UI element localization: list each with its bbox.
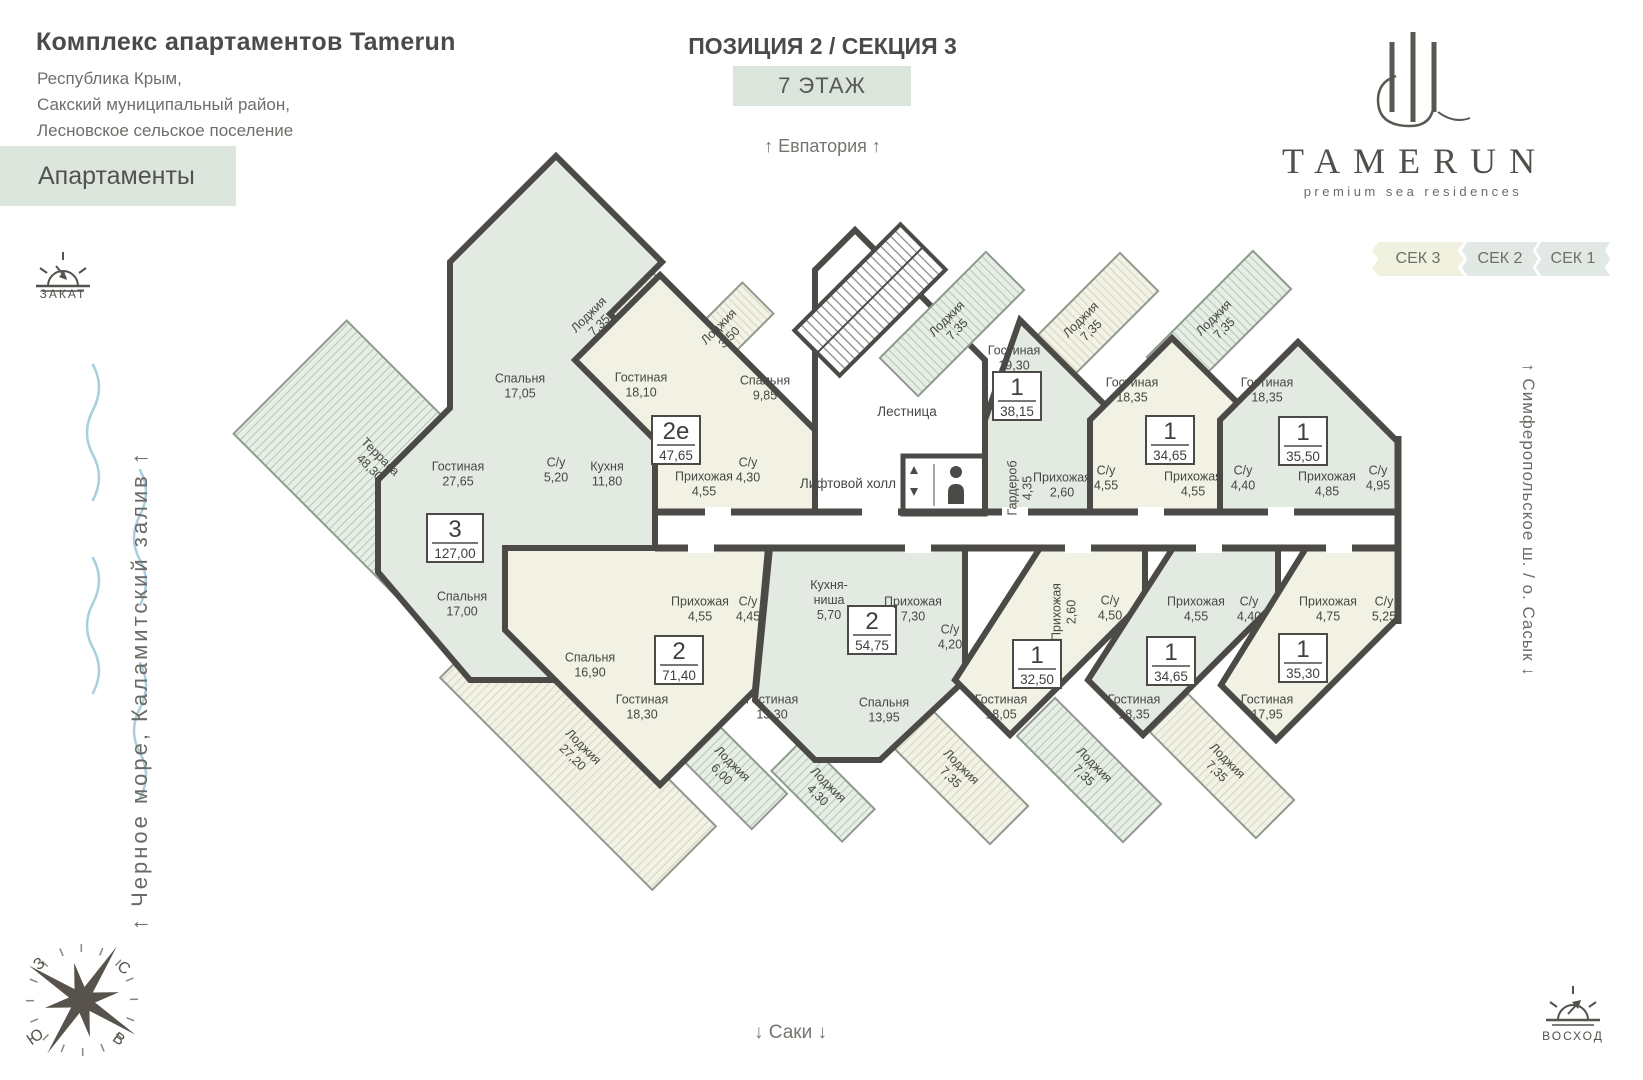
room-label: С/у4,40 xyxy=(1231,464,1255,493)
svg-text:1: 1 xyxy=(1296,636,1309,663)
svg-text:32,50: 32,50 xyxy=(1020,672,1054,687)
svg-text:127,00: 127,00 xyxy=(434,546,475,561)
svg-text:35,50: 35,50 xyxy=(1286,449,1320,464)
address-line: Лесновское сельское поселение xyxy=(37,118,293,144)
svg-text:2: 2 xyxy=(672,638,685,665)
type-badge-apt-3: 3127,00 xyxy=(427,514,483,562)
direction-saki: ↓ Саки ↓ xyxy=(608,1022,973,1044)
type-badge-apt-1-3465b: 134,65 xyxy=(1147,637,1195,685)
corridor xyxy=(655,515,1398,545)
room-label: С/у4,95 xyxy=(1366,464,1390,493)
compass-east: В xyxy=(109,1029,127,1049)
tab-section-3[interactable]: СЕК 3 xyxy=(1372,242,1464,276)
svg-text:3: 3 xyxy=(448,516,461,543)
room-label: С/у4,50 xyxy=(1098,594,1122,623)
svg-text:1: 1 xyxy=(1296,419,1309,446)
tamerun-logo-icon xyxy=(1378,32,1470,126)
sunrise-label: ВОСХОД xyxy=(1542,1029,1604,1043)
common-label: Лифтовой холл xyxy=(800,476,896,491)
position-section-title: ПОЗИЦИЯ 2 / СЕКЦИЯ 3 xyxy=(620,33,1025,60)
logo-tagline: premium sea residences xyxy=(1282,184,1544,199)
room-label: С/у5,25 xyxy=(1372,595,1396,624)
svg-text:1: 1 xyxy=(1010,374,1023,401)
type-badge-apt-2-7140: 271,40 xyxy=(655,636,703,684)
type-badge-apt-2e: 2е47,65 xyxy=(652,416,700,464)
svg-text:2е: 2е xyxy=(663,418,690,445)
page-title: Комплекс апартаментов Tamerun xyxy=(36,28,456,57)
direction-evpatoria: ↑ Евпатория ↑ xyxy=(640,136,1005,157)
address-line: Республика Крым, xyxy=(37,66,293,92)
black-sea-label: ↑ Черное море, Каламитский залив ↑ xyxy=(127,350,153,1030)
type-badge-apt-1-3250: 132,50 xyxy=(1013,640,1061,688)
room-label: С/у5,20 xyxy=(544,456,568,485)
common-label: Лестница xyxy=(877,404,937,419)
type-badge-apt-1-3530: 135,30 xyxy=(1279,634,1327,682)
sunrise-icon xyxy=(1546,986,1600,1025)
svg-text:2: 2 xyxy=(865,608,878,635)
svg-text:34,65: 34,65 xyxy=(1153,448,1187,463)
type-badge-apt-2-5475: 254,75 xyxy=(848,606,896,654)
type-badge-apt-1-3550: 135,50 xyxy=(1279,417,1327,465)
address: Республика Крым, Сакский муниципальный р… xyxy=(37,66,293,144)
sunset-icon xyxy=(36,252,90,291)
highway-label: ↑ Симферопольское ш. / о. Сасык ↓ xyxy=(1518,320,1538,720)
room-label: С/у4,55 xyxy=(1094,464,1118,493)
room-label: С/у4,45 xyxy=(736,595,760,624)
room-label: С/у4,20 xyxy=(938,623,962,652)
room-label: С/у4,30 xyxy=(736,456,760,485)
floor-badge[interactable]: 7 ЭТАЖ xyxy=(733,66,911,106)
svg-text:71,40: 71,40 xyxy=(662,668,696,683)
room-label: Кухня11,80 xyxy=(590,460,623,489)
elevator-icon xyxy=(903,456,985,514)
apartments-badge: Апартаменты xyxy=(0,146,236,206)
compass-south: Ю xyxy=(24,1026,47,1049)
tab-section-1[interactable]: СЕК 1 xyxy=(1536,242,1610,276)
svg-text:1: 1 xyxy=(1030,642,1043,669)
sunset-label: ЗАКАТ xyxy=(40,287,87,301)
svg-text:35,30: 35,30 xyxy=(1286,666,1320,681)
svg-text:1: 1 xyxy=(1164,639,1177,666)
logo-wordmark: TAMERUN xyxy=(1282,140,1544,182)
svg-text:1: 1 xyxy=(1163,418,1176,445)
svg-text:34,65: 34,65 xyxy=(1154,669,1188,684)
room-label: С/у4,40 xyxy=(1237,595,1261,624)
type-badge-apt-1-3815: 138,15 xyxy=(993,372,1041,420)
svg-text:47,65: 47,65 xyxy=(659,448,693,463)
svg-text:54,75: 54,75 xyxy=(855,638,889,653)
tab-section-2[interactable]: СЕК 2 xyxy=(1462,242,1538,276)
svg-text:38,15: 38,15 xyxy=(1000,404,1034,419)
address-line: Сакский муниципальный район, xyxy=(37,92,293,118)
type-badge-apt-1-3465t: 134,65 xyxy=(1146,416,1194,464)
